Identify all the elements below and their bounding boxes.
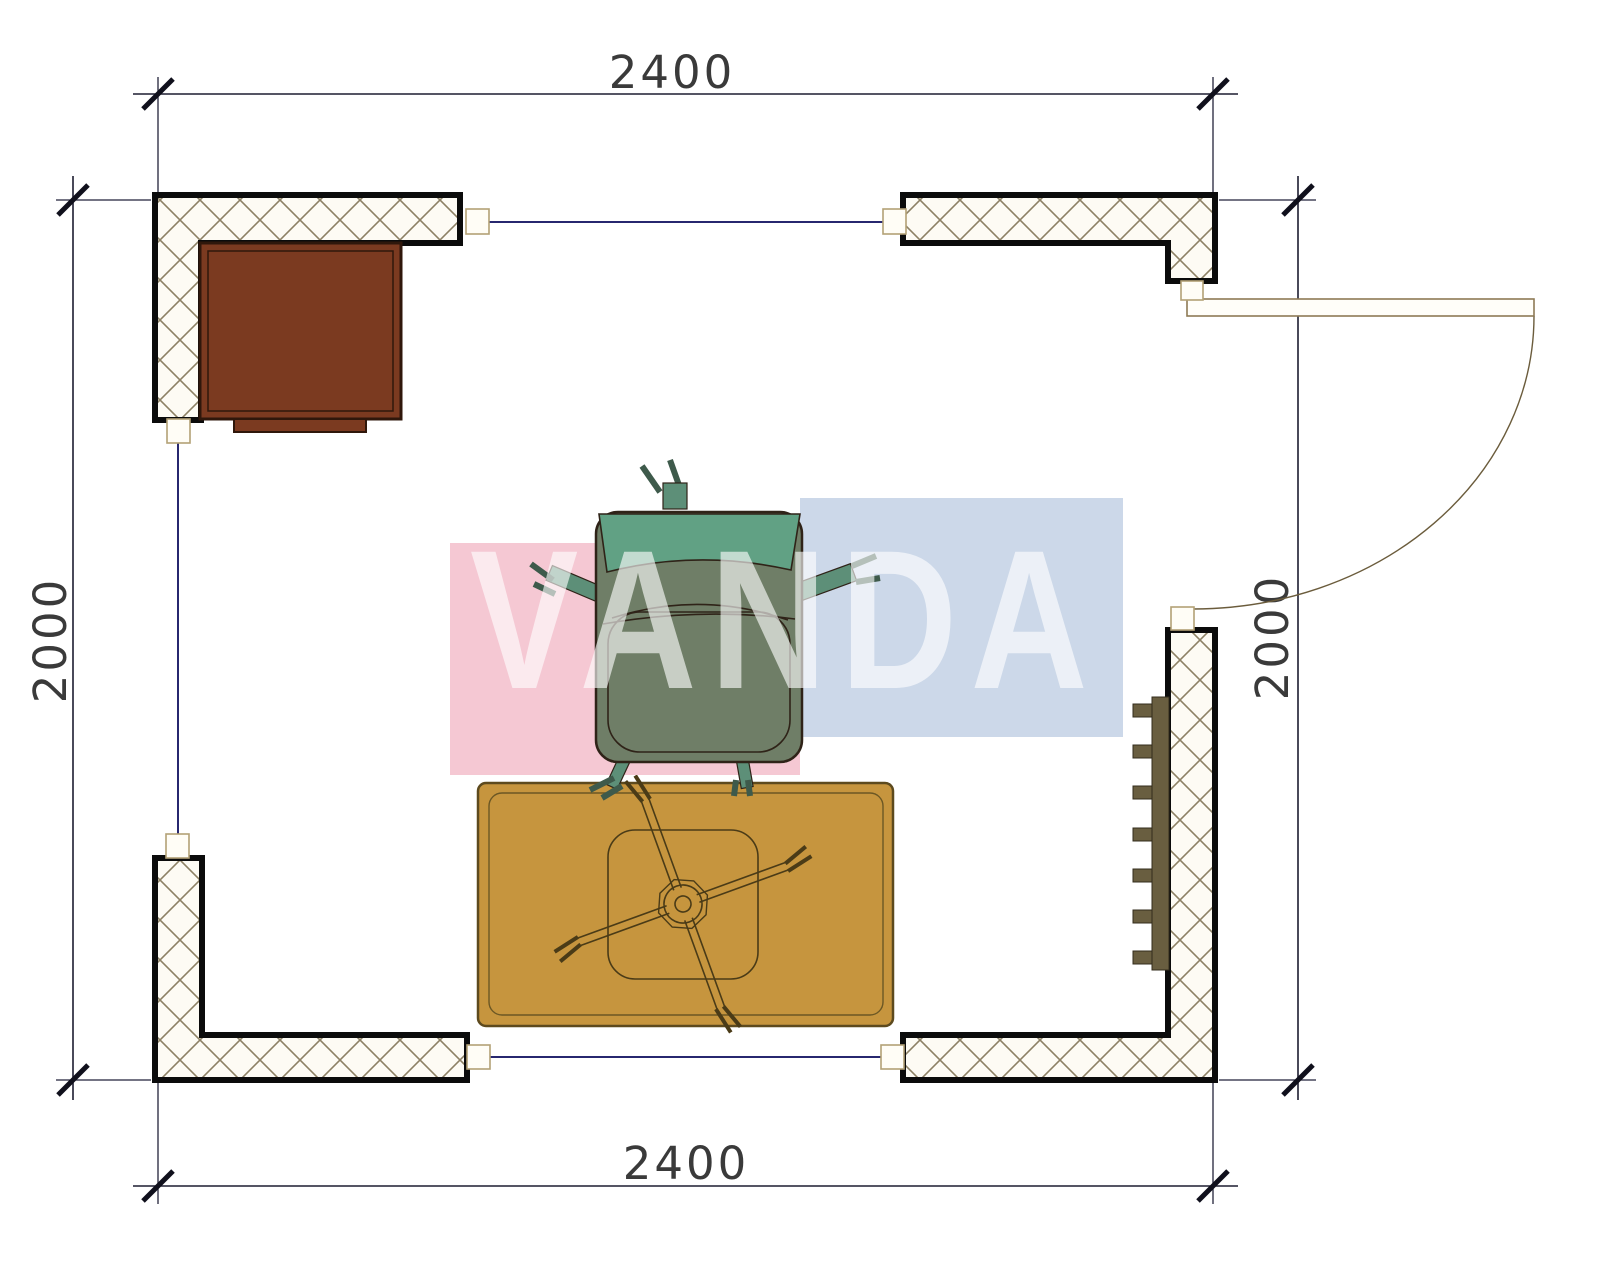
radiator-fin [1133, 704, 1152, 717]
chair-foot-prong [748, 780, 750, 796]
wall-endcap [883, 209, 906, 234]
dimension-left: 2000 [24, 176, 151, 1100]
wall-endcap [1171, 607, 1194, 630]
dim-right-label: 2000 [1246, 574, 1299, 701]
dim-top-label: 2400 [609, 46, 736, 99]
dim-left-label: 2000 [24, 577, 77, 704]
radiator-fin [1133, 951, 1152, 964]
watermark-blue-block [800, 498, 1123, 737]
wall-bottom-left [155, 858, 467, 1080]
cabinet-tab [234, 419, 366, 432]
door [1181, 281, 1534, 609]
radiator-bar [1152, 697, 1169, 970]
wall-endcap [166, 834, 189, 858]
radiator-fin [1133, 869, 1152, 882]
chair-top-knob [663, 483, 687, 509]
door-leaf [1187, 299, 1534, 316]
dim-bottom-label: 2400 [623, 1137, 750, 1190]
rug-body [478, 783, 893, 1026]
chair-right-prong [856, 578, 880, 582]
radiator-fin [1133, 828, 1152, 841]
floorplan-page: { "plan": { "watermark_text": "VANDA", "… [0, 0, 1600, 1280]
wall-endcap [881, 1045, 904, 1069]
radiator-fin [1133, 910, 1152, 923]
wall-endcap [466, 209, 489, 234]
radiator [1133, 697, 1169, 970]
door-swing-arc [1193, 316, 1534, 609]
door-hinge-block [1181, 281, 1203, 300]
cabinet [200, 243, 401, 432]
chair-foot-prong [734, 780, 736, 796]
wall-endcap [167, 419, 190, 443]
wall-top-right [903, 195, 1215, 281]
dimension-bottom: 2400 [133, 1082, 1238, 1204]
wall-endcap [467, 1045, 490, 1069]
chair-top-prong [642, 466, 660, 492]
rug [478, 728, 893, 1079]
floorplan-canvas: 2400 2400 2000 2000 [0, 0, 1600, 1280]
cabinet-body [200, 243, 401, 419]
radiator-fin [1133, 786, 1152, 799]
dimension-top: 2400 [133, 46, 1238, 192]
radiator-fin [1133, 745, 1152, 758]
